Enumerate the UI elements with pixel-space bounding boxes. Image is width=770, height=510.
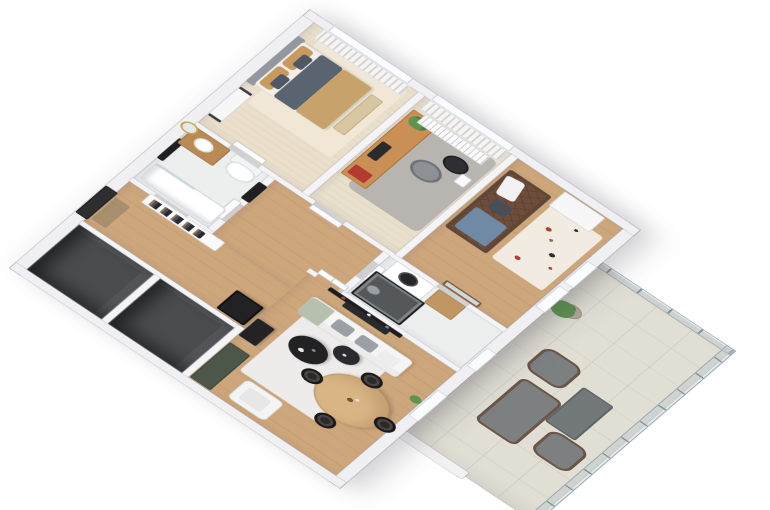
floorplan-scene <box>0 0 770 510</box>
apartment-plan <box>10 10 770 510</box>
